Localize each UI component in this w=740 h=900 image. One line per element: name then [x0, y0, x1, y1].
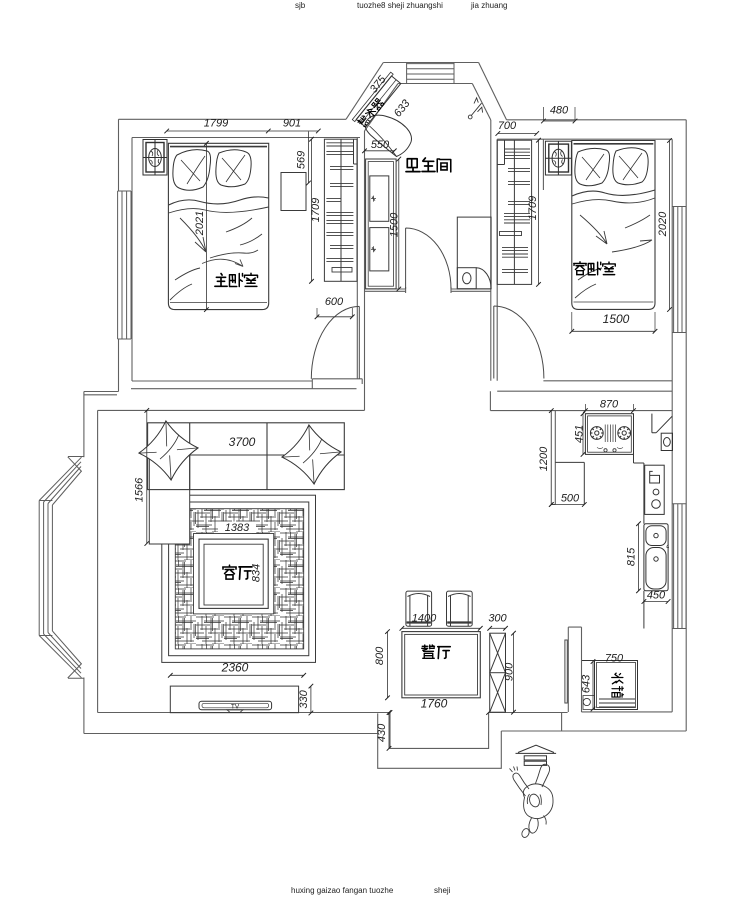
svg-text:834: 834: [251, 564, 263, 582]
svg-text:300: 300: [488, 613, 507, 625]
svg-text:jia zhuang: jia zhuang: [470, 1, 507, 10]
svg-text:1200: 1200: [538, 446, 550, 471]
svg-text:tuozhe8 sheji zhuangshi: tuozhe8 sheji zhuangshi: [357, 1, 443, 10]
svg-text:550: 550: [371, 139, 390, 151]
svg-text:TV: TV: [231, 703, 240, 710]
svg-text:1709: 1709: [527, 196, 539, 220]
svg-text:700: 700: [498, 120, 517, 132]
svg-text:1760: 1760: [421, 697, 448, 711]
svg-text:1500: 1500: [603, 312, 630, 326]
svg-text:901: 901: [283, 118, 301, 130]
svg-text:1400: 1400: [412, 613, 437, 625]
svg-text:1383: 1383: [225, 522, 250, 534]
svg-text:500: 500: [561, 493, 580, 505]
svg-text:2360: 2360: [221, 661, 249, 675]
svg-text:1709: 1709: [310, 198, 322, 222]
svg-text:643: 643: [581, 674, 593, 693]
svg-text:480: 480: [550, 105, 569, 117]
svg-text:870: 870: [600, 399, 619, 411]
svg-text:750: 750: [605, 653, 624, 665]
svg-text:815: 815: [626, 547, 638, 566]
svg-text:451: 451: [574, 425, 586, 443]
svg-text:huxing gaizao fangan tuozhe: huxing gaizao fangan tuozhe: [291, 886, 394, 895]
svg-text:900: 900: [504, 662, 516, 681]
svg-text:3700: 3700: [229, 435, 256, 449]
svg-text:2020: 2020: [657, 211, 669, 237]
svg-text:1566: 1566: [134, 477, 146, 502]
svg-text:600: 600: [325, 296, 344, 308]
svg-text:1799: 1799: [204, 118, 228, 130]
svg-text:569: 569: [296, 151, 308, 169]
svg-text:430: 430: [376, 723, 388, 742]
svg-text:sheji: sheji: [434, 886, 451, 895]
svg-text:2021: 2021: [194, 211, 206, 236]
svg-text:330: 330: [298, 689, 310, 708]
svg-text:800: 800: [374, 646, 386, 665]
svg-text:sjb: sjb: [295, 1, 306, 10]
svg-text:1500: 1500: [388, 212, 400, 237]
svg-text:450: 450: [647, 590, 666, 602]
svg-text:633: 633: [392, 97, 413, 120]
